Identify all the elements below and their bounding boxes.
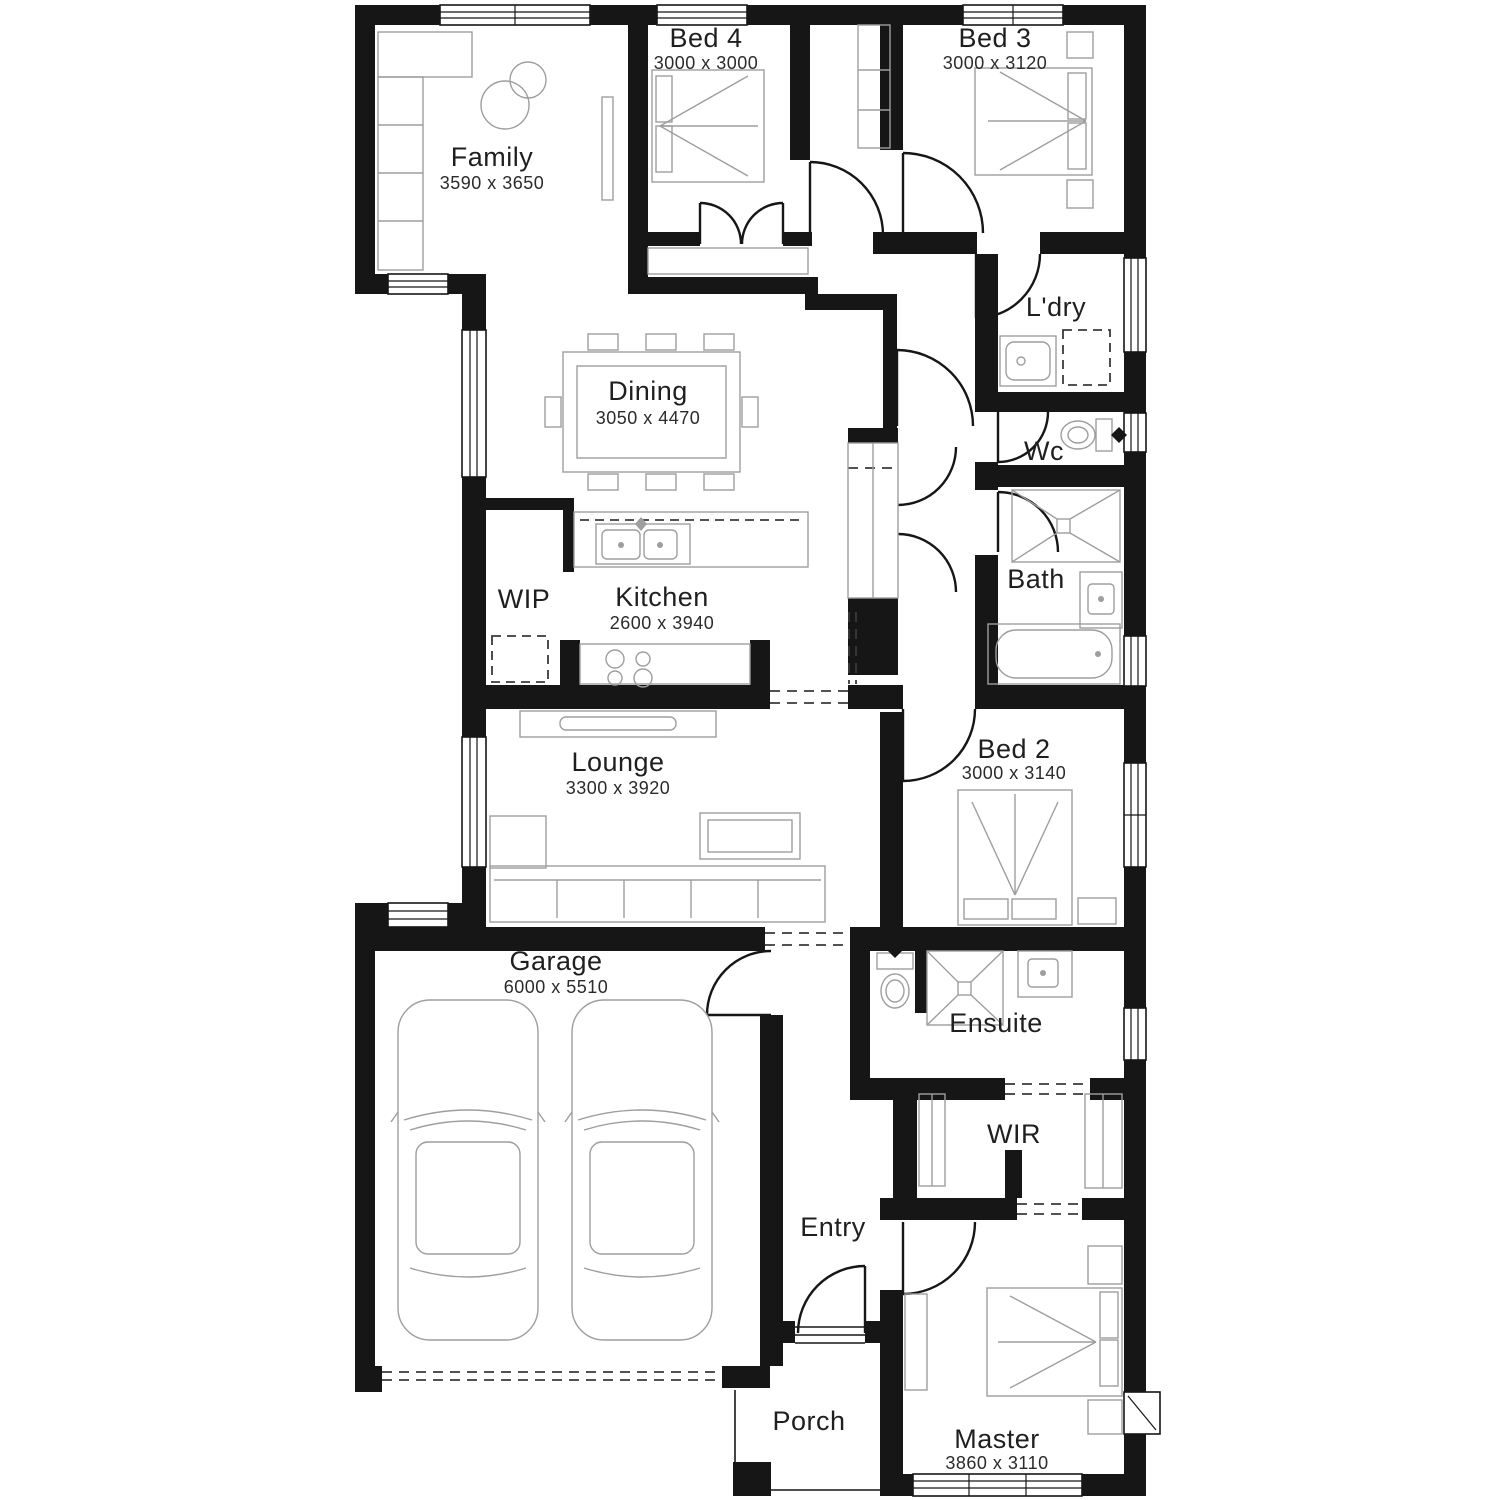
- window-ensuite-right: [1124, 1008, 1146, 1060]
- sofa-lounge: [490, 816, 825, 922]
- bed4-robe-door-left: [700, 203, 741, 244]
- window-wc-right: [1124, 413, 1146, 452]
- room-label-wip: WIP: [498, 584, 551, 614]
- window-bed4-top: [657, 5, 747, 25]
- window-ldry-right: [1124, 258, 1146, 352]
- window-bath-right: [1124, 636, 1146, 686]
- room-label-porch: Porch: [772, 1406, 845, 1436]
- front-door: [798, 1266, 865, 1333]
- room-label-wir: WIR: [987, 1119, 1041, 1149]
- master-door: [903, 1222, 975, 1294]
- bed4-robe: [648, 248, 808, 274]
- room-dims-bed2: 3000 x 3140: [962, 763, 1067, 783]
- room-label-bed3: Bed 3: [958, 23, 1031, 53]
- room-label-bed4: Bed 4: [669, 23, 742, 53]
- room-label-dining: Dining: [608, 376, 688, 406]
- bed4-door: [810, 162, 883, 235]
- hall-door: [897, 350, 973, 426]
- linen-door-bottom: [898, 534, 956, 592]
- bed4-robe-door-right: [742, 203, 783, 244]
- window-bed2-right: [1124, 763, 1146, 867]
- vanity-bath: [1080, 572, 1122, 628]
- pantry-shelf: [492, 636, 548, 682]
- room-dims-dining: 3050 x 4470: [596, 408, 701, 428]
- window-dining-left: [462, 330, 486, 477]
- room-label-entry: Entry: [800, 1212, 866, 1242]
- side-table-family: [481, 62, 546, 129]
- room-dims-master: 3860 x 3110: [945, 1453, 1048, 1473]
- car-icon: [391, 1000, 719, 1340]
- room-label-family: Family: [451, 142, 534, 172]
- armchair: [490, 816, 546, 868]
- room-dims-bed3: 3000 x 3120: [943, 53, 1048, 73]
- room-label-bed2: Bed 2: [977, 734, 1050, 764]
- kitchen-island: [574, 512, 808, 567]
- window-family-top: [440, 5, 590, 25]
- window-bed3-top: [963, 5, 1063, 25]
- master-dresser: [905, 1294, 927, 1390]
- room-label-bath: Bath: [1007, 564, 1065, 594]
- laundry-tub: [1000, 336, 1056, 386]
- tv-unit-lounge: [520, 711, 716, 737]
- linen-door-top: [898, 447, 956, 505]
- room-label-garage: Garage: [509, 946, 602, 976]
- window-lounge-left: [462, 737, 486, 867]
- tv-unit-family: [602, 97, 613, 200]
- window-garage-step: [388, 903, 448, 927]
- toilet-ensuite: [877, 942, 913, 1008]
- room-dims-bed4: 3000 x 3000: [654, 53, 759, 73]
- toilet-wc: [1061, 419, 1127, 451]
- room-label-ensuite: Ensuite: [949, 1008, 1043, 1038]
- bathtub: [988, 624, 1120, 684]
- meter-box: [1124, 1392, 1160, 1434]
- room-label-wc: Wc: [1024, 436, 1064, 466]
- cooktop: [606, 650, 624, 668]
- floor-plan-drawing: Family 3590 x 3650 Bed 4 3000 x 3000 Bed…: [0, 0, 1500, 1500]
- bed2-bed: [958, 790, 1116, 925]
- room-dims-garage: 6000 x 5510: [504, 977, 609, 997]
- room-label-kitchen: Kitchen: [615, 582, 709, 612]
- coffee-table: [700, 813, 800, 859]
- bed3-door: [903, 153, 983, 233]
- window-family-step: [388, 274, 448, 294]
- bed4-bed: [652, 70, 764, 182]
- dryer-space: [1063, 330, 1110, 385]
- window-master-bottom: [913, 1474, 1082, 1496]
- linen-closet-hall: [848, 443, 898, 598]
- room-label-lounge: Lounge: [571, 747, 664, 777]
- room-label-ldry: L'dry: [1026, 292, 1086, 322]
- car-icon: [565, 1000, 719, 1340]
- cooktop-bench: [580, 644, 750, 687]
- room-dims-lounge: 3300 x 3920: [566, 778, 671, 798]
- floor-plan: Family 3590 x 3650 Bed 4 3000 x 3000 Bed…: [0, 0, 1500, 1500]
- room-label-master: Master: [954, 1424, 1040, 1454]
- openings-dashed: [382, 330, 1110, 1380]
- shower-bath: [1012, 490, 1120, 562]
- garage-internal-door: [707, 951, 771, 1015]
- vanity-ensuite: [1018, 951, 1072, 997]
- room-dims-family: 3590 x 3650: [440, 173, 545, 193]
- master-bed: [905, 1246, 1122, 1434]
- room-dims-kitchen: 2600 x 3940: [610, 613, 715, 633]
